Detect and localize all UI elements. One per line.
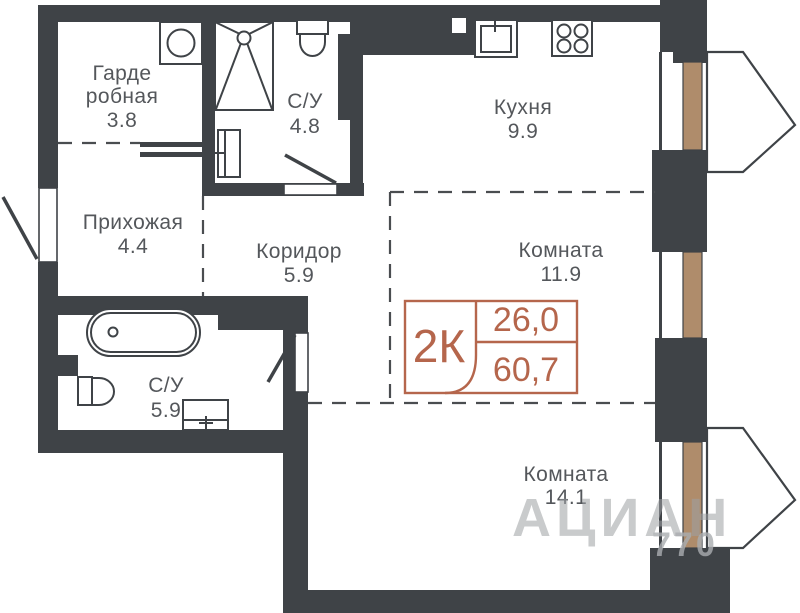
wall-top-right-block [660,0,707,52]
stove-icon [552,20,592,56]
wall-pillar-2 [655,338,707,442]
bay-window-top [707,52,795,172]
windows [683,62,702,548]
window-band-2 [683,252,702,338]
bathtub-icon [87,309,200,356]
bath-bottom-door-opening [295,333,308,392]
bath-top-door-leaf [285,155,336,183]
badge-living-area: 26,0 [493,301,559,339]
label-bath-bottom-name: С/У [148,374,184,397]
label-bath-top-name: С/У [287,90,323,113]
floorplan-svg: 2К 26,0 60,7 Гарде робная 3.8 С/У 4.8 Ку… [0,0,800,613]
wall-left-upper [38,5,58,188]
wall-step-bath [218,296,293,330]
bath-top-door-opening [284,184,337,195]
toilet-bottom-icon [78,377,114,405]
label-hallway-area: 4.4 [118,235,148,258]
wall-bath2-left-step [58,355,78,376]
label-wardrobe-area: 3.8 [107,109,137,132]
label-room-mid-area: 11.9 [541,263,582,286]
label-corridor-area: 5.9 [284,264,314,287]
area-badge: 2К 26,0 60,7 [405,301,577,393]
window-band-1 [683,62,702,150]
sink-bottom-icon [183,400,228,430]
sliding-door-bar-2 [140,152,203,157]
label-bath-top-area: 4.8 [290,115,320,138]
label-hallway-name: Прихожая [83,211,184,234]
label-room-bottom-name: Комната [523,463,608,486]
wall-shower-kitchen-narrow [350,22,363,196]
kitchen-sink-icon [475,13,517,57]
entrance-door-leaf [3,197,37,259]
entrance-door-opening [39,188,57,262]
label-kitchen-name: Кухня [494,96,552,119]
wall-shower-bottom [202,183,364,196]
badge-type-label: 2К [413,320,466,372]
label-wardrobe-line1: Гарде [92,62,151,85]
shower-icon [215,22,273,110]
label-corridor-name: Коридор [256,240,342,263]
sliding-door-bar-1 [140,142,203,147]
toilet-top-icon [297,20,328,56]
wall-niche [452,18,466,33]
label-kitchen-area: 9.9 [508,120,538,143]
watermark: АЦИАН 770 [512,488,732,564]
watermark-number: 770 [652,526,718,564]
wall-bath2-bottom [38,430,308,453]
wall-window-cap-top [673,50,707,63]
balcony-bays [707,52,795,548]
sink-top-icon [212,130,240,177]
badge-total-area: 60,7 [493,351,559,389]
floorplan-image: 2К 26,0 60,7 Гарде робная 3.8 С/У 4.8 Ку… [0,0,800,613]
label-bath-bottom-area: 5.9 [151,399,181,422]
label-room-mid-name: Комната [518,239,603,262]
wall-left-lower [38,262,58,453]
label-wardrobe-line2: робная [86,85,158,108]
washing-machine-icon [160,22,202,64]
wall-wardrobe-shower [202,22,215,196]
